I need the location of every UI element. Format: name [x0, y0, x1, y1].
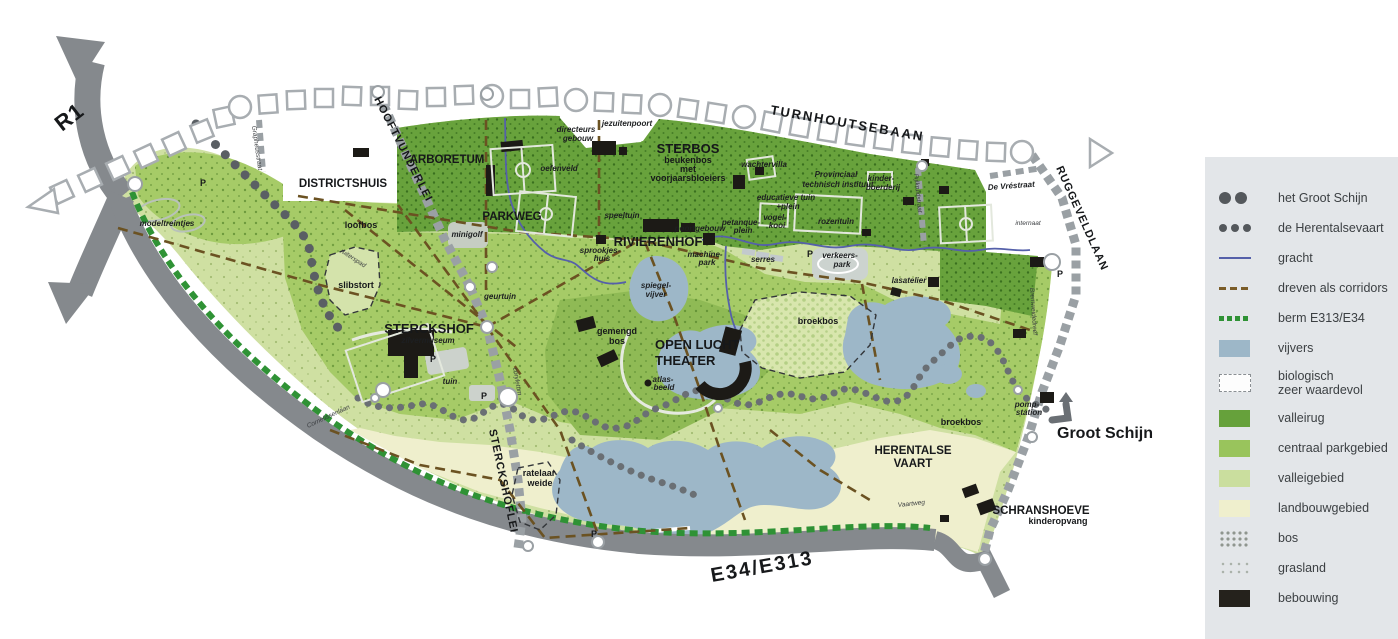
valleirug-swatch-icon	[1219, 410, 1267, 427]
label-petanqueplein-2: plein	[733, 226, 753, 235]
label-educatieve-tuin-2: +plein	[776, 202, 799, 211]
legend-item-bos: bos	[1205, 523, 1398, 553]
centraal-swatch-icon	[1219, 440, 1267, 457]
label-directeursgebouw: directeurs	[557, 125, 596, 134]
legend-label: landbouwgebied	[1278, 501, 1369, 515]
legend-item-bebouwing: bebouwing	[1205, 583, 1398, 613]
label-jezuitenpoort: jezuitenpoort	[601, 119, 653, 128]
legend-label: valleigebied	[1278, 471, 1344, 485]
label-verkeerspark: verkeers-	[822, 251, 858, 260]
groot-schijn-exit-arrow	[1052, 404, 1068, 420]
legend-panel: het Groot Schijn de Herentalsevaart grac…	[1205, 157, 1398, 639]
landbouw-swatch-icon	[1219, 500, 1267, 517]
label-broekbos-2: broekbos	[941, 417, 982, 427]
vijvers-swatch-icon	[1219, 340, 1267, 357]
label-herentalse-vaart-2: VAART	[894, 458, 933, 470]
label-poortgebouw: poortgebouw	[674, 224, 726, 233]
parking-marker: P	[807, 249, 813, 259]
parking-marker: P	[1057, 269, 1063, 279]
label-sterbos-sub: voorjaarsbloeiers	[650, 173, 725, 183]
grasland-pattern-icon	[1219, 560, 1267, 577]
legend-label: het Groot Schijn	[1278, 191, 1368, 205]
gracht-line-icon	[1219, 257, 1267, 259]
label-rozentuin: rozentuin	[818, 217, 854, 226]
legend-label: valleirug	[1278, 411, 1325, 425]
label-kinderopvang: kinderopvang	[1028, 516, 1087, 526]
bos-pattern-icon	[1219, 530, 1267, 547]
legend-label: biologisch	[1278, 369, 1334, 383]
label-spiegelvijver-2: vijver	[646, 290, 668, 299]
legend-label: grasland	[1278, 561, 1326, 575]
chain-arrow-east	[1090, 139, 1112, 167]
legend-item-vijvers: vijvers	[1205, 333, 1398, 363]
park-map: P P P P P P R1 E34/E313 TURNHOUTSEBAAN R…	[0, 0, 1398, 639]
label-machinepark-2: park	[698, 258, 716, 267]
pond-pump-1	[934, 364, 962, 384]
pompstation-building	[1040, 392, 1054, 403]
label-ratelaarweide: ratelaar	[523, 468, 556, 478]
label-groot-schijn: Groot Schijn	[1057, 425, 1153, 442]
label-pti: Provinciaal	[815, 170, 858, 179]
label-spiegelvijver: spiegel-	[641, 281, 672, 290]
label-slibstort: slibstort	[338, 280, 374, 290]
legend-item-grasland: grasland	[1205, 553, 1398, 583]
label-arboretum: ARBORETUM	[410, 154, 485, 166]
label-sprookjeshuis-2: huis	[594, 254, 611, 263]
label-pti-2: technisch instituut	[802, 180, 873, 189]
label-loofbos: loofbos	[345, 220, 378, 230]
legend-label-2: zeer waardevol	[1278, 383, 1363, 397]
parking-marker: P	[481, 391, 487, 401]
parking-marker: P	[591, 529, 597, 539]
chain-arrow-west	[28, 189, 58, 213]
legend-label: bos	[1278, 531, 1298, 545]
label-directeursgebouw-2: gebouw	[562, 134, 594, 143]
label-wachtervilla: wachtervilla	[741, 160, 787, 169]
label-internaat: internaat	[1015, 220, 1041, 227]
label-sterckshof: STERCKSHOF	[384, 321, 474, 336]
label-openluchttheater: OPEN LUCHT	[655, 337, 740, 352]
label-atlasbeeld-2: beeld	[654, 383, 676, 392]
legend-item-gracht: gracht	[1205, 243, 1398, 273]
label-tuin: tuin	[443, 377, 458, 386]
label-sterbos: STERBOS	[657, 141, 720, 156]
label-kinderboerderij: kinder-	[868, 174, 895, 183]
groot-schijn-dots-icon	[1219, 192, 1267, 204]
label-openluchttheater-2: THEATER	[655, 353, 716, 368]
r1-arrow-south	[48, 282, 97, 324]
label-parkweg: PARKWEG	[482, 211, 541, 223]
legend-item-biologisch: biologisch zeer waardevol	[1205, 363, 1398, 403]
park-map-page: P P P P P P R1 E34/E313 TURNHOUTSEBAAN R…	[0, 0, 1398, 639]
groot-schijn-arrowhead	[1059, 392, 1073, 402]
legend-label: centraal parkgebied	[1278, 441, 1388, 455]
legend-label: gracht	[1278, 251, 1313, 265]
legend-item-dreven: dreven als corridors	[1205, 273, 1398, 303]
label-vogelkooi-2: kooi	[769, 221, 786, 230]
road-de-vrestraat	[990, 168, 1042, 176]
legend-label: vijvers	[1278, 341, 1313, 355]
label-ratelaarweide-2: weide	[526, 478, 552, 488]
legend-item-berm: berm E313/E34	[1205, 303, 1398, 333]
legend-label: bebouwing	[1278, 591, 1338, 605]
legend-item-centraal-parkgebied: centraal parkgebied	[1205, 433, 1398, 463]
label-rivierenhof: RIVIERENHOF	[614, 234, 703, 249]
legend-item-valleigebied: valleigebied	[1205, 463, 1398, 493]
parking-marker: P	[200, 178, 206, 188]
bebouwing-swatch-icon	[1219, 590, 1267, 607]
legend-item-herentalsevaart: de Herentalsevaart	[1205, 213, 1398, 243]
label-serres: serres	[751, 255, 776, 264]
label-verkeerspark-2: park	[833, 260, 851, 269]
herentalsevaart-dots-icon	[1219, 224, 1267, 232]
legend-label: berm E313/E34	[1278, 311, 1365, 325]
pond-pump-2	[966, 384, 986, 398]
label-zilvermuseum: zilvermuseum	[400, 336, 454, 345]
legend-label: dreven als corridors	[1278, 281, 1388, 295]
label-geurtuin: geurtuin	[483, 292, 516, 301]
legend-item-valleirug: valleirug	[1205, 403, 1398, 433]
label-broekbos: broekbos	[798, 316, 839, 326]
parking-marker: P	[430, 354, 436, 364]
legend-item-groot-schijn: het Groot Schijn	[1205, 183, 1398, 213]
label-gemengd-bos: gemengd	[597, 326, 637, 336]
legend-label: de Herentalsevaart	[1278, 221, 1384, 235]
dreven-dash-icon	[1219, 287, 1267, 290]
label-gemengd-bos-2: bos	[609, 336, 625, 346]
label-pompstation-2: station	[1016, 408, 1042, 417]
label-modeltreintjes: modeltreintjes	[140, 219, 195, 228]
berm-dash-icon	[1219, 316, 1267, 321]
label-lasatelier: lasatelier	[892, 276, 928, 285]
label-speeltuin: speeltuin	[604, 211, 639, 220]
valleigebied-swatch-icon	[1219, 470, 1267, 487]
label-kinderboerderij-2: boerderij	[866, 183, 901, 192]
label-minigolf: minigolf	[451, 230, 483, 239]
biologisch-box-icon	[1219, 374, 1267, 392]
label-districtshuis: DISTRICTSHUIS	[299, 178, 388, 190]
label-herentalse-vaart: HERENTALSE	[874, 445, 951, 457]
legend-item-landbouwgebied: landbouwgebied	[1205, 493, 1398, 523]
label-educatieve-tuin: educatieve tuin	[757, 193, 815, 202]
label-oefenveld: oefenveld	[540, 164, 578, 173]
